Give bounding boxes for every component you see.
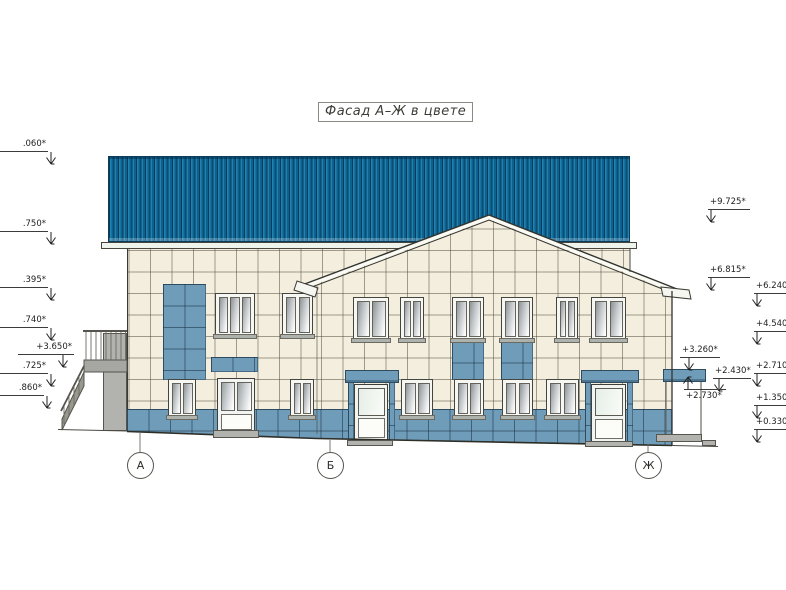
side-steps-lower <box>702 440 716 446</box>
axis-label: Ж <box>643 459 655 472</box>
elevation-arrow-icon <box>44 327 58 343</box>
elevation-mark: .740* <box>0 316 48 328</box>
axis-bubble-a: А <box>127 452 154 479</box>
side-steps-upper <box>656 434 702 442</box>
elevation-mark: .750* <box>0 220 48 232</box>
elevation-mark: .060* <box>0 140 48 152</box>
elevation-arrow-icon <box>44 151 58 167</box>
axis-label: Б <box>327 459 335 472</box>
elevation-arrow-icon <box>56 354 70 370</box>
elevation-mark: +4.540* <box>754 320 786 332</box>
elevation-arrow-icon <box>750 373 764 389</box>
elevation-mark: +6.240* <box>754 282 786 294</box>
linework-overlay <box>0 0 786 590</box>
elevation-arrow-icon <box>704 209 718 225</box>
elevation-mark: .860* <box>0 384 44 396</box>
elevation-arrow-icon <box>40 395 54 411</box>
stoop-door-a <box>213 430 259 438</box>
elevation-arrow-icon <box>750 331 764 347</box>
elevation-mark: +6.815* <box>708 266 750 278</box>
elevation-arrow-icon <box>750 429 764 445</box>
stoop-door-zh <box>585 441 633 447</box>
elevation-mark: .395* <box>0 276 48 288</box>
elevation-arrow-icon <box>44 287 58 303</box>
elevation-arrow-icon <box>704 277 718 293</box>
axis-bubble-zh: Ж <box>635 452 662 479</box>
elevation-arrow-icon <box>681 374 695 390</box>
elevation-mark: +2.430* <box>713 367 751 379</box>
facade-drawing: Фасад А–Ж в цвете <box>0 0 786 590</box>
elevation-mark: +0.330* <box>754 418 786 430</box>
elevation-arrow-icon <box>44 373 58 389</box>
stoop-door-b <box>347 440 393 446</box>
elevation-mark: .725* <box>0 362 48 374</box>
elevation-arrow-icon <box>44 231 58 247</box>
elevation-arrow-icon <box>682 357 696 373</box>
elevation-mark: +2.730* <box>684 389 726 401</box>
elevation-mark: +3.650* <box>18 343 74 355</box>
elevation-mark: +3.260* <box>680 346 720 358</box>
elevation-mark: +2.710* <box>754 362 786 374</box>
elevation-mark: +9.725* <box>708 198 750 210</box>
elevation-mark: +1.350* <box>754 394 786 406</box>
elevation-arrow-icon <box>750 293 764 309</box>
axis-bubble-b: Б <box>317 452 344 479</box>
axis-label: А <box>137 459 145 472</box>
